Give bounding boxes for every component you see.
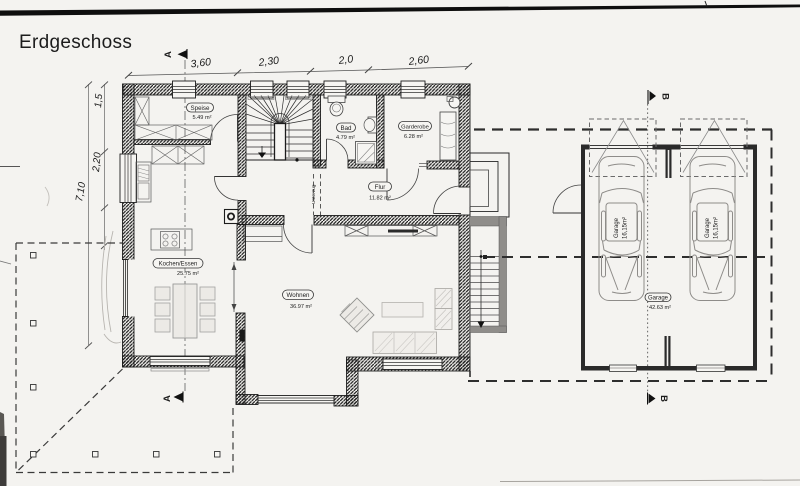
svg-text:25.75 m²: 25.75 m² [177, 271, 199, 277]
svg-text:B: B [659, 93, 670, 100]
svg-text:2,20: 2,20 [91, 151, 104, 173]
svg-text:Speise: Speise [191, 105, 210, 112]
svg-text:Wohnen: Wohnen [287, 292, 310, 299]
svg-text:Garage: Garage [705, 217, 711, 238]
svg-text:B: B [658, 395, 669, 402]
svg-text:16,15m²: 16,15m² [714, 217, 720, 239]
svg-text:Erdgeschoss: Erdgeschoss [19, 32, 132, 53]
svg-text:2,0: 2,0 [337, 53, 354, 67]
svg-text:11.82 m²: 11.82 m² [369, 196, 391, 202]
svg-text:Unterzug: Unterzug [311, 184, 317, 204]
svg-text:5.49 m²: 5.49 m² [193, 115, 212, 121]
svg-text:6.28 m²: 6.28 m² [404, 134, 423, 140]
svg-text:Bad: Bad [340, 125, 352, 132]
svg-text:Garage: Garage [614, 217, 620, 238]
svg-text:1,5: 1,5 [93, 93, 105, 108]
svg-text:A: A [162, 395, 173, 402]
svg-text:36.97 m²: 36.97 m² [290, 304, 312, 310]
svg-text:Garage: Garage [648, 296, 669, 302]
svg-text:3,60: 3,60 [190, 56, 212, 70]
svg-text:A: A [163, 51, 174, 58]
svg-text:Kochen/Essen: Kochen/Essen [159, 262, 198, 268]
svg-text:Garderobe: Garderobe [401, 125, 429, 131]
svg-text:42.63 m²: 42.63 m² [649, 305, 671, 311]
svg-text:Flur: Flur [375, 184, 386, 191]
svg-text:16,15m²: 16,15m² [623, 217, 629, 239]
svg-text:4.79 m²: 4.79 m² [336, 135, 355, 141]
